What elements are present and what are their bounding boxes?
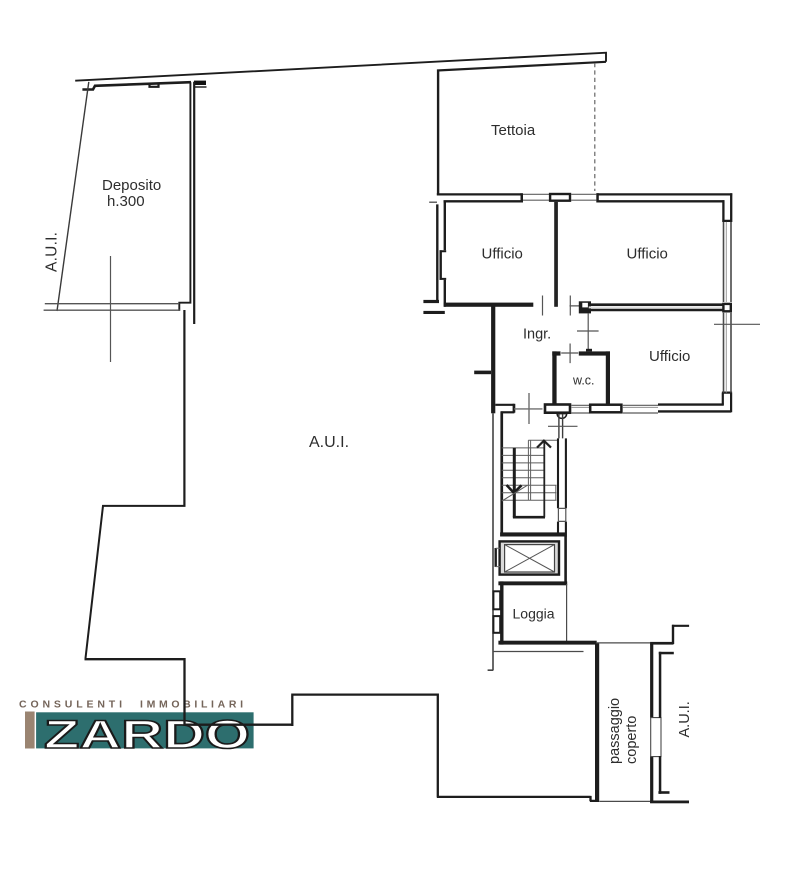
svg-text:Ufficio: Ufficio: [649, 348, 690, 365]
svg-text:IMMOBILIARI: IMMOBILIARI: [140, 699, 243, 711]
svg-text:A.U.I.: A.U.I.: [44, 232, 61, 272]
svg-text:Ufficio: Ufficio: [482, 246, 523, 263]
svg-text:A.U.I.: A.U.I.: [677, 701, 693, 737]
svg-text:CONSULENTI: CONSULENTI: [19, 699, 122, 711]
svg-text:Loggia: Loggia: [513, 606, 555, 622]
svg-text:Deposito: Deposito: [102, 177, 161, 194]
svg-text:h.300: h.300: [107, 193, 145, 210]
svg-text:coperto: coperto: [624, 716, 640, 764]
svg-text:w.c.: w.c.: [572, 374, 595, 388]
svg-text:Ufficio: Ufficio: [627, 246, 668, 263]
svg-text:ZARDO: ZARDO: [44, 713, 250, 757]
svg-text:Ingr.: Ingr.: [523, 327, 551, 343]
svg-text:A.U.I.: A.U.I.: [309, 434, 349, 451]
svg-text:Tettoia: Tettoia: [491, 122, 536, 139]
svg-text:passaggio: passaggio: [607, 698, 623, 764]
